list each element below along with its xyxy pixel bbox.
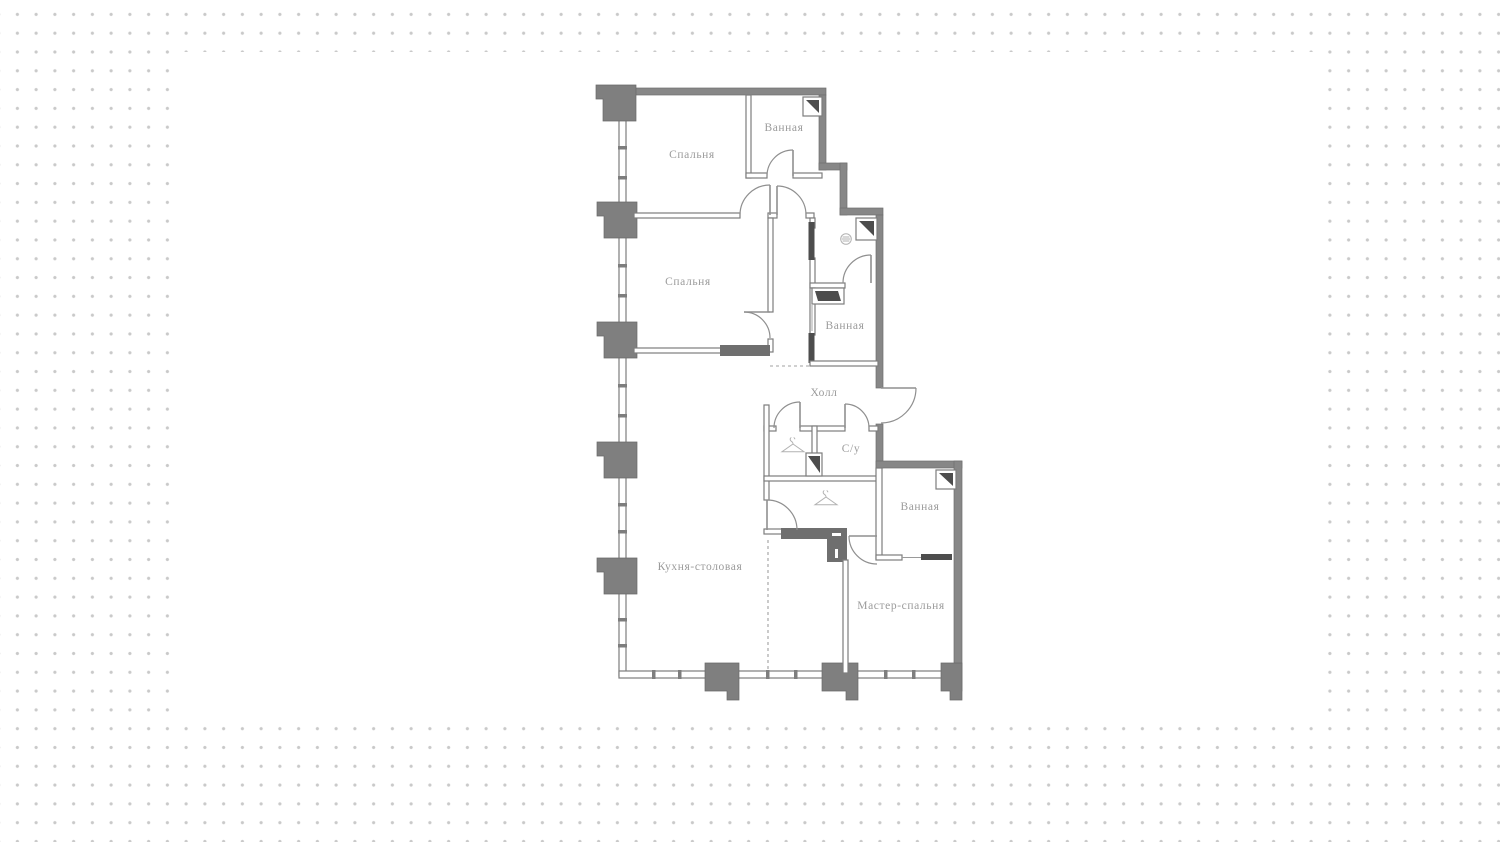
hanger-icon — [815, 490, 837, 505]
room-label-hall: Холл — [810, 387, 837, 399]
room-label-master-bedroom: Мастер-спальня — [857, 600, 945, 612]
room-label-bedroom-1: Спальня — [669, 149, 715, 161]
hanger-icon — [782, 437, 804, 452]
room-label-bathroom-2: Ванная — [825, 320, 864, 332]
washing-machine-icon — [841, 234, 852, 245]
page: { "page": { "background": "#ffffff", "do… — [0, 0, 1500, 842]
exterior-window-walls — [618, 95, 958, 679]
room-label-kitchen-dining: Кухня-столовая — [658, 561, 743, 573]
floorplan: СпальняВаннаяСпальняВаннаяХоллС/уВаннаяК… — [0, 0, 1500, 842]
dashed-boundaries — [768, 305, 812, 671]
room-label-bedroom-2: Спальня — [665, 276, 711, 288]
room-label-bathroom-1: Ванная — [764, 122, 803, 134]
doors — [740, 150, 916, 564]
interior-walls — [634, 95, 952, 673]
room-label-bathroom-3: Ванная — [900, 501, 939, 513]
room-label-wc: С/у — [842, 443, 860, 455]
